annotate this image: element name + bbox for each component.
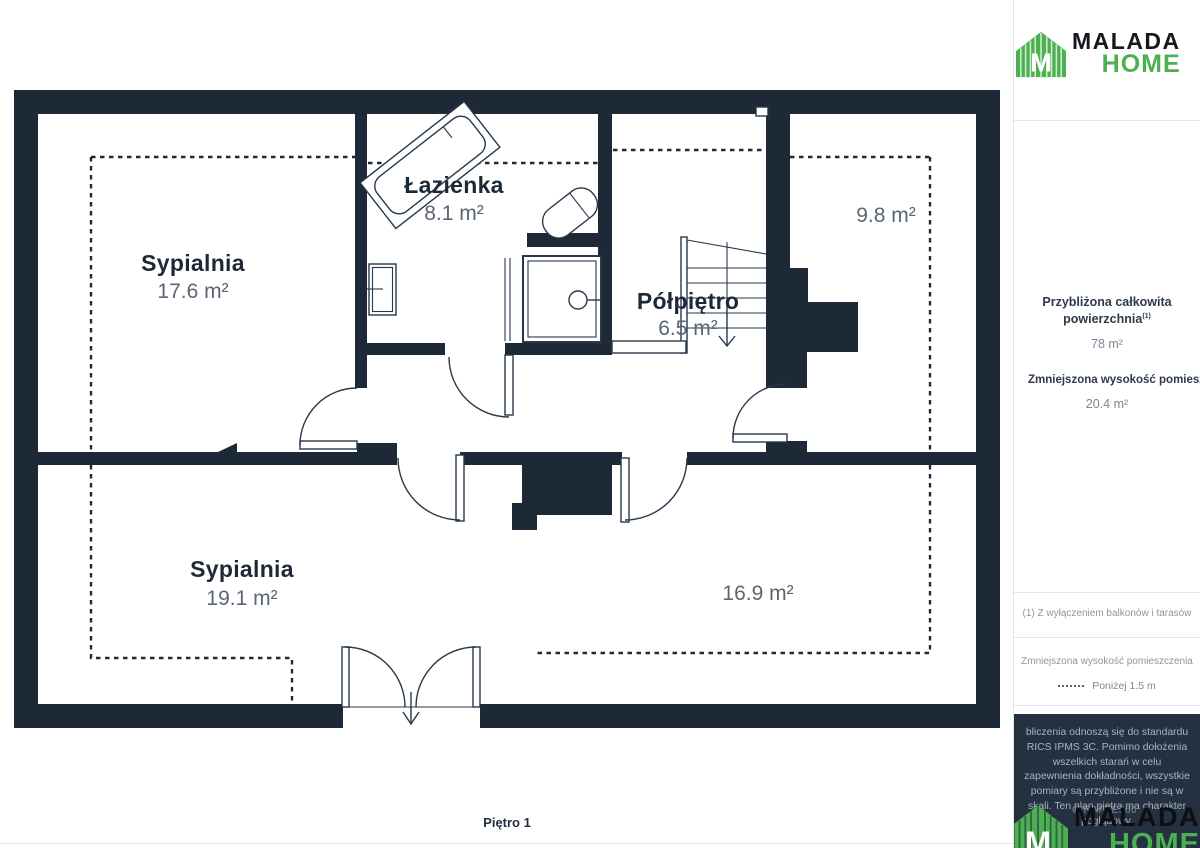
low-ceiling-dashed-lines <box>91 150 930 704</box>
section-divider <box>1014 637 1200 638</box>
brand-house-icon: M <box>1014 804 1068 848</box>
room-label-pokoj-9-8: 9.8 m² <box>856 204 916 227</box>
reduced-height-label: Zmniejszona wysokość pomieszczenia <box>1014 373 1200 389</box>
room-label-sypialnia-gorna: Sypialnia 17.6 m² <box>141 250 245 303</box>
area-summary: Przybliżona całkowita powierzchnia(1) 78… <box>1014 294 1200 411</box>
footnote-text: (1) Z wyłączeniem balkonów i tarasów <box>1014 608 1200 619</box>
interior-walls <box>38 114 977 530</box>
door-pokoj-16-9 <box>621 458 687 522</box>
legend: Zmniejszona wysokość pomieszczenia Poniż… <box>1014 656 1200 692</box>
section-divider <box>1014 120 1200 121</box>
svg-text:Sypialnia: Sypialnia <box>141 250 245 276</box>
legend-title: Zmniejszona wysokość pomieszczenia <box>1014 656 1200 667</box>
svg-text:8.1 m²: 8.1 m² <box>424 202 484 225</box>
floor-label: Piętro 1 <box>0 815 1014 830</box>
floorplan-page: Sypialnia 17.6 m² Łazienka 8.1 m² Półpię… <box>0 0 1200 848</box>
reduced-height-value: 20.4 m² <box>1014 397 1200 411</box>
svg-text:M: M <box>1030 47 1052 77</box>
dashed-line-sample-icon <box>1058 685 1084 687</box>
svg-text:19.1 m²: 19.1 m² <box>206 587 277 610</box>
door-lazienka <box>449 355 513 417</box>
brand-logo-footer: M MALADA HOME <box>1014 804 1200 848</box>
svg-text:6.5 m²: 6.5 m² <box>658 317 718 340</box>
room-label-pokoj-16-9: 16.9 m² <box>722 582 793 605</box>
svg-text:16.9 m²: 16.9 m² <box>722 582 793 605</box>
section-divider <box>1014 705 1200 706</box>
double-exit-door <box>342 647 480 724</box>
total-area-value: 78 m² <box>1014 337 1200 351</box>
door-pokoj-9-8 <box>733 384 787 442</box>
shower-icon <box>505 256 601 342</box>
info-sidebar: M MALADA HOME Przybliżona całkowita powi… <box>1014 0 1200 848</box>
door-sypialnia-gorna <box>300 388 357 449</box>
brand-name-secondary: HOME <box>1102 53 1181 77</box>
section-divider <box>1014 592 1200 593</box>
legend-item-label: Poniżej 1.5 m <box>1092 680 1156 692</box>
door-sypialnia-dolna <box>398 455 464 521</box>
brand-house-icon: M <box>1016 30 1066 78</box>
disclaimer-box: bliczenia odnoszą się do standardu RICS … <box>1014 714 1200 848</box>
svg-text:17.6 m²: 17.6 m² <box>157 280 228 303</box>
floorplan-drawing: Sypialnia 17.6 m² Łazienka 8.1 m² Półpię… <box>0 0 1014 848</box>
svg-text:Łazienka: Łazienka <box>404 172 504 198</box>
room-label-sypialnia-dolna: Sypialnia 19.1 m² <box>190 556 294 610</box>
svg-text:M: M <box>1025 825 1051 848</box>
brand-name-secondary: HOME <box>1109 831 1200 848</box>
brand-logo: M MALADA HOME <box>1016 30 1198 78</box>
bottom-divider <box>0 843 1014 844</box>
sink-icon <box>367 264 396 315</box>
total-area-label: Przybliżona całkowita powierzchnia(1) <box>1014 294 1200 328</box>
svg-text:9.8 m²: 9.8 m² <box>856 204 916 227</box>
room-label-polpietro: Półpiętro 6.5 m² <box>637 288 739 340</box>
svg-text:Sypialnia: Sypialnia <box>190 556 294 582</box>
svg-text:Półpiętro: Półpiętro <box>637 288 739 314</box>
footnote-marker: (1) <box>1142 313 1151 320</box>
